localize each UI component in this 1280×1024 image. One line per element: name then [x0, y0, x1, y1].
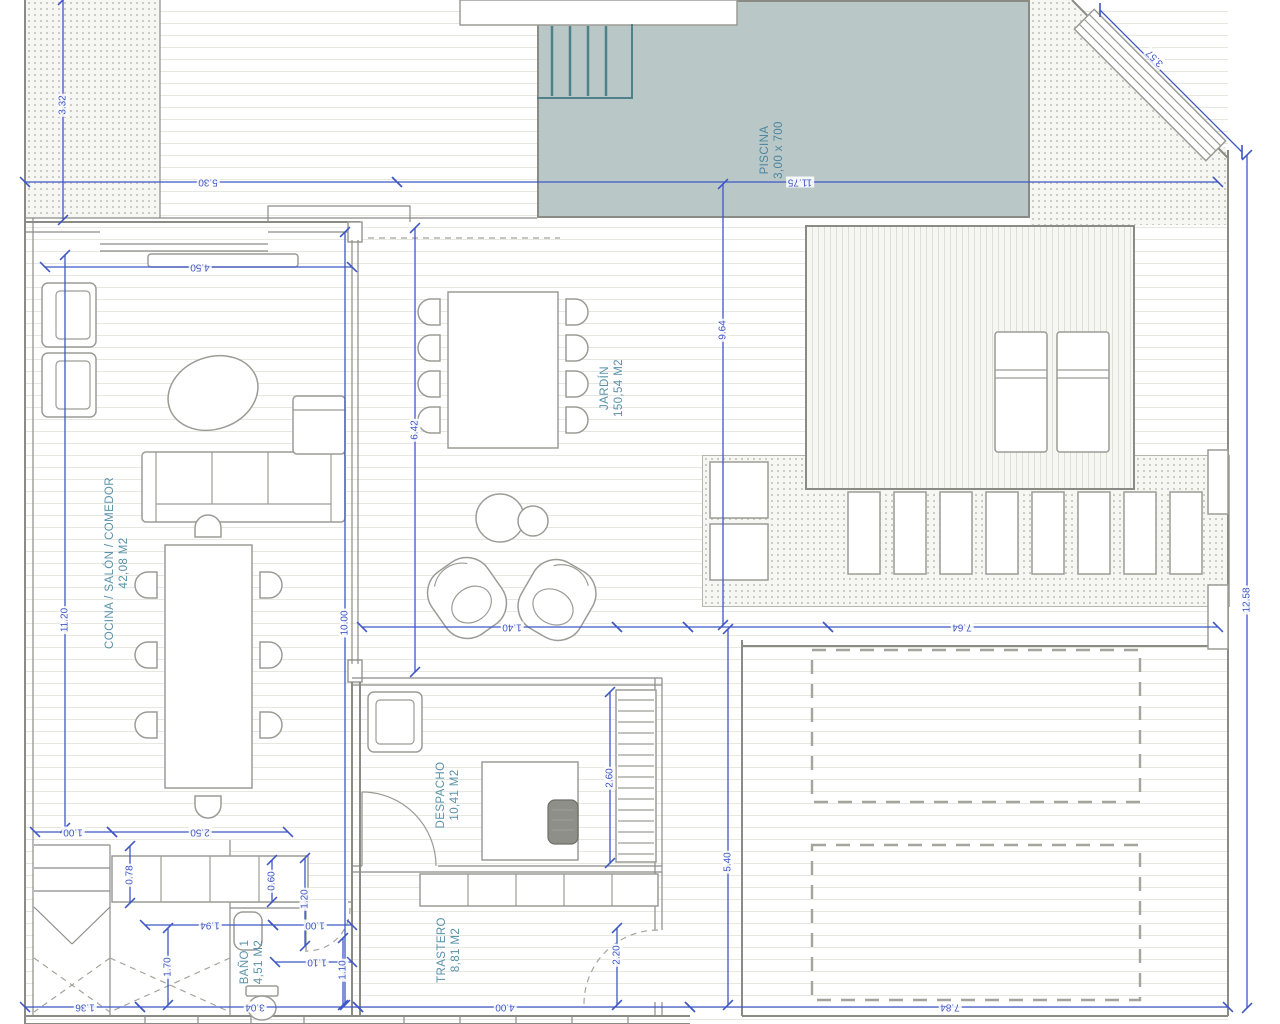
- floor-plan-sheet: 3.325.3011.753.574.5011.2010.006.429.641…: [0, 0, 1280, 1024]
- dimension-label: 5.40: [723, 850, 734, 873]
- dimension-label: 0.78: [125, 863, 136, 886]
- dimension-label: 1.40: [500, 622, 523, 633]
- dimension-label: 11.75: [786, 177, 814, 188]
- dimension-label: 6.42: [410, 418, 421, 441]
- room-name: PISCINA: [758, 121, 772, 179]
- room-label-cocina: COCINA / SALÓN / COMEDOR 42,08 M2: [103, 477, 131, 649]
- room-label-jardin: JARDÍN 150,54 M2: [598, 359, 626, 417]
- room-name: COCINA / SALÓN / COMEDOR: [103, 477, 117, 649]
- dimension-label: 1.10: [338, 958, 349, 981]
- room-area: 42,08 M2: [117, 477, 131, 649]
- dimension-label: 1.10: [305, 957, 328, 968]
- room-name: JARDÍN: [598, 359, 612, 417]
- dimension-label: 5.30: [196, 177, 219, 188]
- dimension-label: 1.00: [61, 827, 84, 838]
- room-area: 4,51 M2: [252, 940, 266, 985]
- dimension-label: 1.94: [198, 920, 221, 931]
- room-name: DESPACHO: [434, 762, 448, 829]
- dimension-label: 2.60: [605, 766, 616, 789]
- dimension-label: 0.60: [267, 869, 278, 892]
- dimension-label: 12.58: [1242, 585, 1253, 614]
- dimension-label: 1.20: [300, 887, 311, 910]
- dimension-label: 3.04: [243, 1002, 266, 1013]
- room-label-despacho: DESPACHO 10,41 M2: [434, 762, 462, 829]
- room-area: 10,41 M2: [448, 762, 462, 829]
- dimension-label: 1.00: [303, 920, 326, 931]
- room-label-piscina: PISCINA 3,00 x 700: [758, 121, 786, 179]
- dimension-label: 1.70: [163, 955, 174, 978]
- room-area: 150,54 M2: [612, 359, 626, 417]
- room-name: TRASTERO: [435, 917, 449, 983]
- dimension-label: 4.50: [188, 262, 211, 273]
- room-area: 8,81 M2: [449, 917, 463, 983]
- room-label-trastero: TRASTERO 8,81 M2: [435, 917, 463, 983]
- pool-size: 3,00 x 700: [772, 121, 786, 179]
- room-label-bano: BAÑO 1 4,51 M2: [238, 940, 266, 985]
- dimension-label: 3.32: [58, 93, 69, 116]
- dimension-label: 2.50: [188, 827, 211, 838]
- dimension-label: 2.20: [612, 943, 623, 966]
- room-name: BAÑO 1: [238, 940, 252, 985]
- dimensions-layer: [0, 0, 1280, 1024]
- dimension-line: [1100, 10, 1242, 152]
- dimension-label: 7.84: [938, 1002, 961, 1013]
- dimension-label: 4.00: [493, 1002, 516, 1013]
- dimension-label: 10.00: [340, 608, 351, 637]
- dimension-label: 7.64: [950, 622, 973, 633]
- dimension-label: 9.64: [718, 318, 729, 341]
- dimension-label: 11.20: [60, 606, 71, 634]
- dimension-label: 1.36: [73, 1002, 96, 1013]
